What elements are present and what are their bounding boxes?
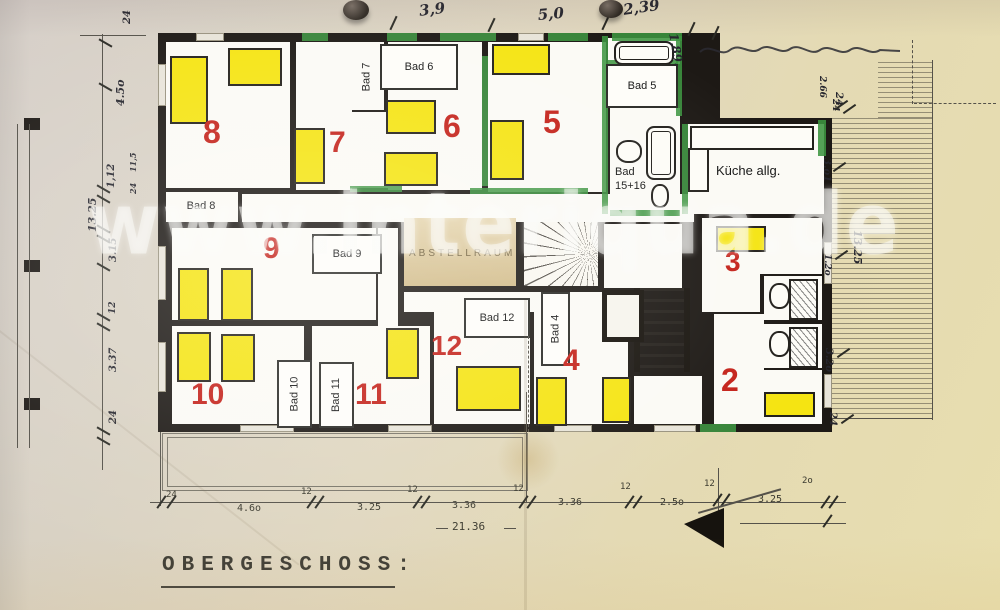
window (824, 374, 832, 408)
room-number-6: 6 (443, 110, 461, 142)
wall-corner-mark (24, 260, 40, 272)
bed (764, 392, 815, 417)
tick-mark (487, 18, 495, 32)
handwriting-squiggle (695, 36, 905, 70)
bathtub (614, 41, 674, 65)
pushpin (599, 0, 623, 18)
dimension-line (29, 124, 30, 448)
dimension-line (160, 432, 161, 506)
room-number-4: 4 (563, 346, 580, 376)
green-wall-segment (440, 33, 496, 41)
bed (386, 328, 419, 379)
bath-label: Bad 5 (628, 80, 657, 92)
green-wall-segment (700, 424, 736, 432)
window (196, 33, 224, 41)
bed (492, 44, 550, 75)
dimension-text: 2,39 (622, 0, 661, 19)
room-area (634, 376, 702, 424)
floor-title-underline (161, 586, 395, 588)
dimension-line (932, 60, 933, 420)
room-number-5: 5 (543, 106, 561, 138)
bath-label-box: Bad 11 (319, 362, 354, 428)
green-wall-segment (548, 33, 588, 41)
window (654, 425, 696, 432)
dimension-text: 12 (513, 484, 524, 494)
tick-mark (99, 38, 113, 47)
dimension-text: 12 (704, 479, 715, 489)
bath-label: Bad 12 (480, 312, 515, 324)
bath-label: Bad 6 (405, 61, 434, 73)
tick-mark (99, 82, 113, 91)
wall-corner-mark (24, 398, 40, 410)
bath-label: Bad 7 (360, 63, 372, 92)
green-wall-segment (387, 33, 417, 41)
green-wall-segment (818, 120, 826, 156)
floor-plan-scan: www.interiqua.de OBERGESCHOSS: Bad 6Bad … (0, 0, 1000, 610)
bed (490, 120, 524, 180)
dimension-text: 11,5 (128, 153, 138, 172)
tick-mark (97, 426, 111, 435)
bed (228, 48, 282, 86)
window (518, 33, 544, 41)
bed (536, 377, 567, 426)
dimension-text: 24 (108, 410, 119, 424)
dimension-text: 12 (620, 482, 631, 492)
dimension-text: 12 (407, 485, 418, 495)
dashed-line (914, 103, 996, 105)
dashed-line (912, 40, 914, 104)
room-number-10: 10 (191, 380, 224, 410)
shower (789, 279, 818, 320)
dimension-text: 5,0 (537, 4, 565, 24)
room-number-7: 7 (329, 128, 346, 158)
dimension-text: 2.66 (817, 76, 827, 98)
tick-mark (389, 16, 397, 30)
bath-label-box: Bad 7 (350, 44, 382, 110)
dimension-line (526, 392, 527, 502)
bed (177, 332, 211, 382)
dimension-text: 3.37 (108, 348, 119, 372)
shower (789, 327, 818, 368)
dimension-text: 3.25 (357, 502, 381, 513)
closet (602, 290, 644, 342)
tick-mark (97, 322, 111, 331)
dashed-line (528, 336, 530, 432)
room-number-11: 11 (355, 380, 387, 410)
bath-label-box: Bad 6 (380, 44, 458, 90)
toilet (769, 331, 790, 357)
bath-label-box: Bad 10 (277, 360, 312, 428)
terrace-hatch (878, 62, 932, 120)
dimension-text: 3.2o (823, 348, 834, 372)
green-wall-segment (302, 33, 328, 41)
window (388, 425, 432, 432)
dimension-text: 21.36 (452, 520, 485, 533)
wall-corner-mark (24, 118, 40, 130)
north-arrow (684, 508, 724, 548)
bed (221, 268, 253, 321)
bath-label-box: Bad 12 (464, 298, 530, 338)
bath-label: Bad 4 (550, 315, 562, 344)
bed (178, 268, 209, 321)
dimension-text: 12 (301, 487, 312, 497)
bed (221, 334, 255, 382)
floor-title: OBERGESCHOSS: (162, 554, 417, 577)
dimension-line (740, 523, 846, 524)
bath-label: Bad 11 (331, 378, 343, 412)
dimension-text: 4.5o (114, 80, 127, 106)
dimension-text: 24 (122, 10, 133, 24)
dimension-line (436, 528, 448, 529)
kitchen-counter (690, 126, 814, 150)
dimension-line (80, 35, 146, 36)
green-wall-segment (482, 56, 488, 186)
dimension-text: 3,9 (418, 0, 446, 20)
pushpin (343, 0, 369, 20)
bed (386, 100, 436, 134)
tick-mark (822, 514, 832, 527)
toilet (616, 140, 642, 163)
watermark: www.interiqua.de (88, 176, 901, 275)
squiggle-svg (695, 36, 905, 70)
window (158, 64, 166, 106)
room-number-12: 12 (431, 332, 462, 360)
dimension-line (17, 124, 18, 448)
bathtub (646, 126, 676, 180)
window (554, 425, 592, 432)
bath-label: Bad 10 (289, 377, 301, 412)
room-number-8: 8 (203, 116, 221, 148)
dimension-text: 12 (108, 301, 118, 314)
window (158, 342, 166, 392)
bath-label-box: Bad 5 (606, 64, 678, 108)
bed (456, 366, 521, 411)
dimension-line (150, 502, 846, 503)
dimension-text: 4.6o (237, 503, 261, 514)
tick-mark (843, 104, 856, 114)
tick-mark (601, 16, 609, 30)
dimension-line (504, 528, 516, 529)
toilet (769, 283, 790, 309)
dimension-text: 2o (802, 476, 813, 486)
balcony-outline (167, 437, 523, 487)
room-number-2: 2 (721, 364, 739, 396)
tick-mark (97, 436, 111, 445)
bed (602, 377, 631, 423)
